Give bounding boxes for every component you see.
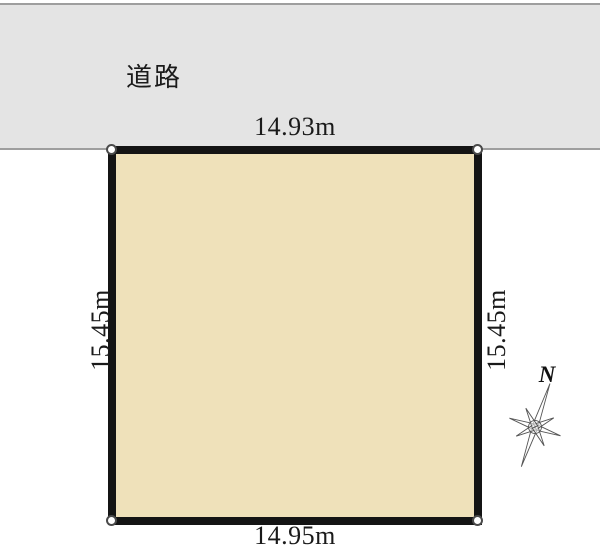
dimension-bottom: 14.95m (108, 521, 482, 549)
dimension-top: 14.93m (108, 112, 482, 142)
corner-marker-top-left (106, 144, 117, 155)
road-label: 道路 (126, 57, 182, 94)
corner-marker-top-right (472, 144, 483, 155)
compass-rose-icon: N (493, 352, 583, 477)
dimension-left: 15.45m (86, 275, 116, 385)
compass-north-label: N (538, 362, 557, 387)
land-plot-diagram: 道路 14.93m 15.45m 15.45m 14.95m (0, 0, 600, 549)
compass: N (493, 352, 583, 477)
land-plot-shape (108, 146, 482, 525)
